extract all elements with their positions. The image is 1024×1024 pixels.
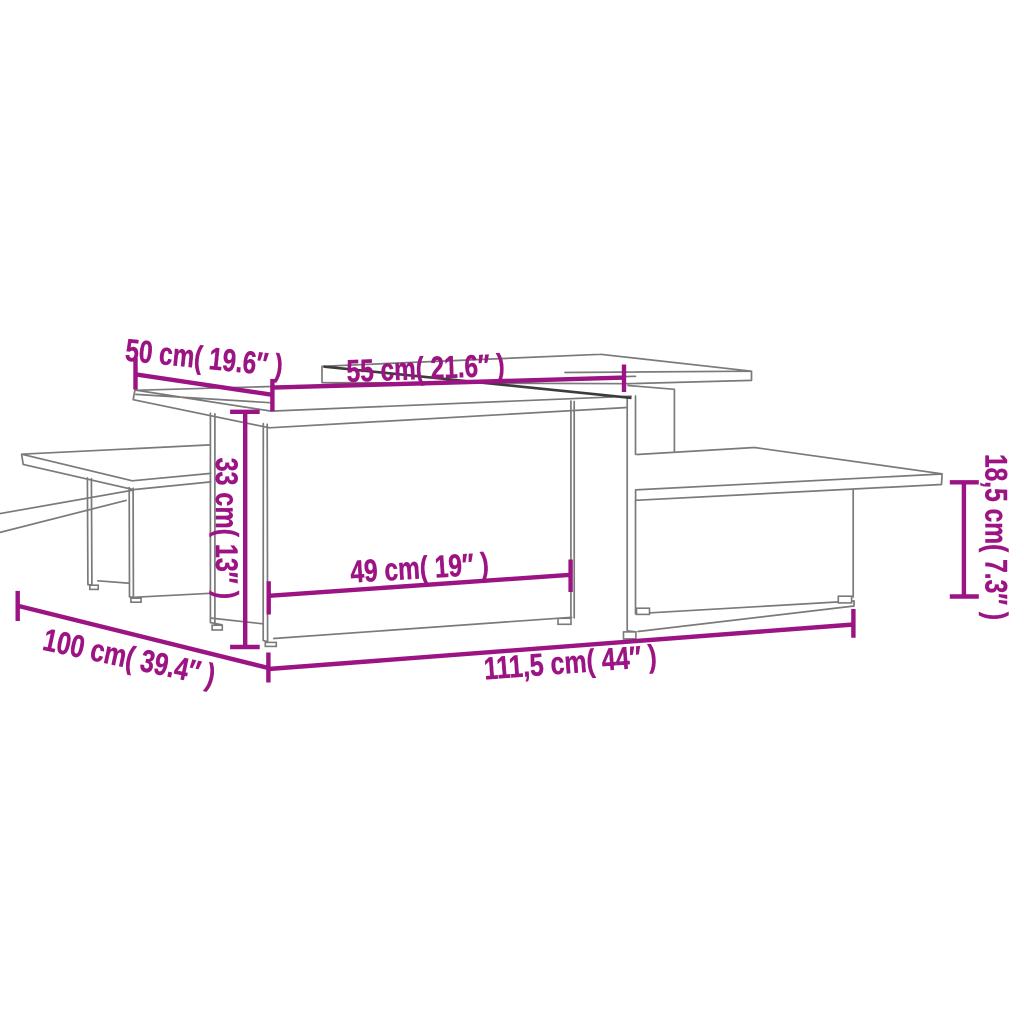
svg-text:55 cm( 21.6″ ): 55 cm( 21.6″ ) — [346, 347, 505, 389]
svg-text:18,5 cm( 7.3″ ): 18,5 cm( 7.3″ ) — [979, 454, 1015, 620]
svg-text:33 cm( 13″ ): 33 cm( 13″ ) — [209, 458, 245, 599]
